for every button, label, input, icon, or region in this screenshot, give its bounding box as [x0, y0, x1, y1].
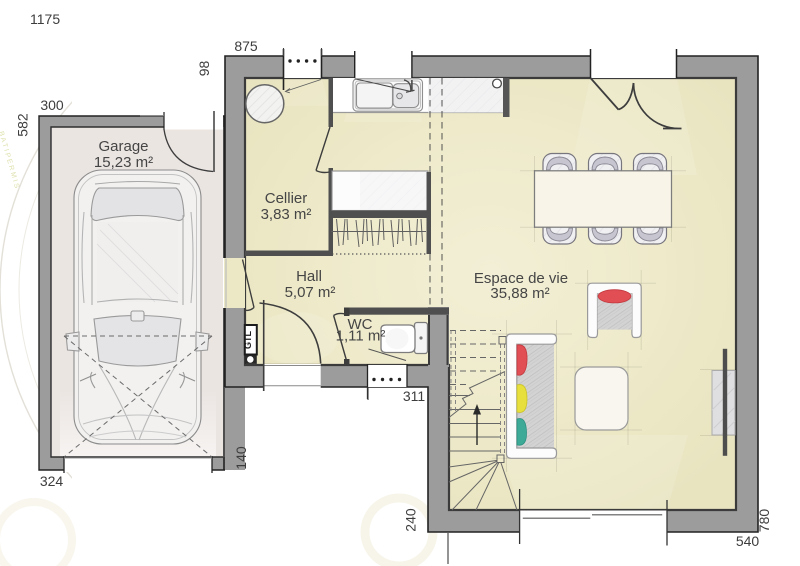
svg-text:5,07 m²: 5,07 m²: [285, 284, 336, 301]
svg-text:875: 875: [234, 38, 258, 54]
svg-text:Garage: Garage: [98, 138, 148, 155]
svg-text:98: 98: [196, 61, 212, 77]
svg-text:780: 780: [756, 509, 772, 533]
svg-text:300: 300: [40, 97, 64, 113]
svg-text:311: 311: [403, 388, 426, 404]
svg-text:1175: 1175: [30, 11, 60, 27]
svg-text:15,23 m²: 15,23 m²: [94, 154, 153, 171]
svg-text:324: 324: [40, 473, 64, 489]
svg-text:540: 540: [736, 533, 760, 549]
svg-text:Cellier: Cellier: [265, 190, 308, 207]
svg-text:140: 140: [233, 446, 249, 470]
svg-text:3,83 m²: 3,83 m²: [261, 206, 312, 223]
svg-text:Hall: Hall: [296, 268, 322, 285]
svg-text:582: 582: [15, 113, 31, 137]
svg-text:240: 240: [403, 508, 419, 532]
svg-text:35,88 m²: 35,88 m²: [490, 285, 549, 302]
svg-text:GTL: GTL: [243, 331, 253, 349]
svg-text:1,11 m²: 1,11 m²: [336, 328, 386, 345]
